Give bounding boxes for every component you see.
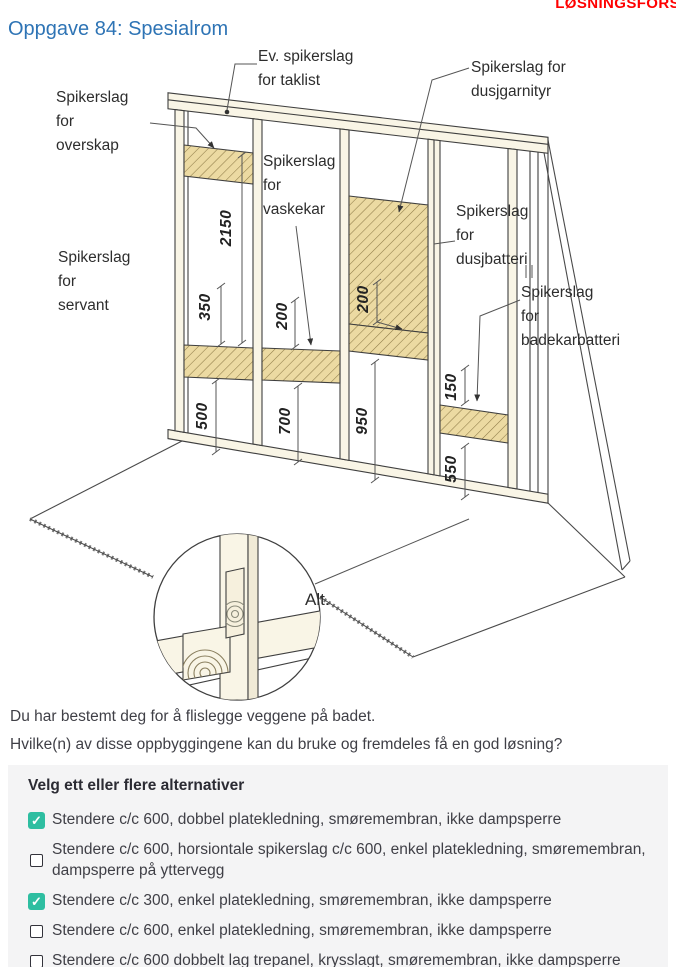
label-badekarbatteri: Spikerslag for badekarbatteri: [521, 281, 620, 353]
dimension-500: 500: [194, 402, 212, 429]
dimension-150: 150: [443, 373, 461, 400]
detail-circle: [150, 530, 330, 700]
dimension-2150: 2150: [218, 210, 236, 246]
dimension-200-vaskekar: 200: [274, 302, 292, 329]
dimension-350: 350: [197, 293, 215, 320]
option-label: Stendere c/c 300, enkel platekledning, s…: [52, 891, 552, 912]
option-row-5[interactable]: Stendere c/c 600 dobbelt lag trepanel, k…: [28, 951, 648, 967]
label-servant: Spikerslag for servant: [58, 246, 130, 318]
checkbox-option-5[interactable]: [30, 955, 43, 967]
checkbox-option-2[interactable]: [30, 854, 43, 867]
option-row-1[interactable]: Stendere c/c 600, dobbel platekledning, …: [28, 810, 648, 831]
option-row-3[interactable]: Stendere c/c 300, enkel platekledning, s…: [28, 891, 648, 912]
options-panel: Velg ett eller flere alternativer Stende…: [8, 765, 668, 967]
dimension-200-dusj: 200: [355, 285, 373, 312]
wall-framing-diagram: Spikerslag for overskap Ev. spikerslag f…: [0, 0, 676, 710]
return-wall: [542, 140, 630, 570]
checkbox-option-4[interactable]: [30, 925, 43, 938]
page: LØSNINGSFORS Oppgave 84: Spesialrom: [0, 0, 676, 967]
question-line-2: Hvilke(n) av disse oppbyggingene kan du …: [10, 736, 562, 754]
option-label: Stendere c/c 600, dobbel platekledning, …: [52, 810, 561, 831]
dimension-950: 950: [354, 407, 372, 434]
checkbox-option-3[interactable]: [28, 893, 45, 910]
spikerslag-servant: [184, 345, 253, 380]
spikerslag-vaskekar: [262, 348, 340, 383]
spikerslag-badekarbatteri: [440, 405, 508, 443]
dimension-550: 550: [443, 455, 461, 482]
label-vaskekar: Spikerslag for vaskekar: [263, 150, 335, 222]
spikerslag-overskap: [184, 145, 253, 184]
option-label: Stendere c/c 600 dobbelt lag trepanel, k…: [52, 951, 621, 967]
option-label: Stendere c/c 600, horsiontale spikerslag…: [52, 840, 648, 882]
label-alt: Alt.: [305, 588, 330, 612]
label-dusjbatteri: Spikerslag for dusjbatteri: [456, 200, 528, 272]
dimension-700: 700: [277, 407, 295, 434]
label-taklist: Ev. spikerslag for taklist: [258, 45, 353, 93]
floor: [30, 441, 625, 657]
label-dusjgarnityr: Spikerslag for dusjgarnityr: [471, 56, 566, 104]
option-row-2[interactable]: Stendere c/c 600, horsiontale spikerslag…: [28, 840, 648, 882]
option-row-4[interactable]: Stendere c/c 600, enkel platekledning, s…: [28, 921, 648, 942]
label-overskap: Spikerslag for overskap: [56, 86, 128, 158]
options-heading: Velg ett eller flere alternativer: [28, 777, 648, 795]
checkbox-option-1[interactable]: [28, 812, 45, 829]
option-label: Stendere c/c 600, enkel platekledning, s…: [52, 921, 552, 942]
question-line-1: Du har bestemt deg for å flislegge vegge…: [10, 708, 375, 726]
